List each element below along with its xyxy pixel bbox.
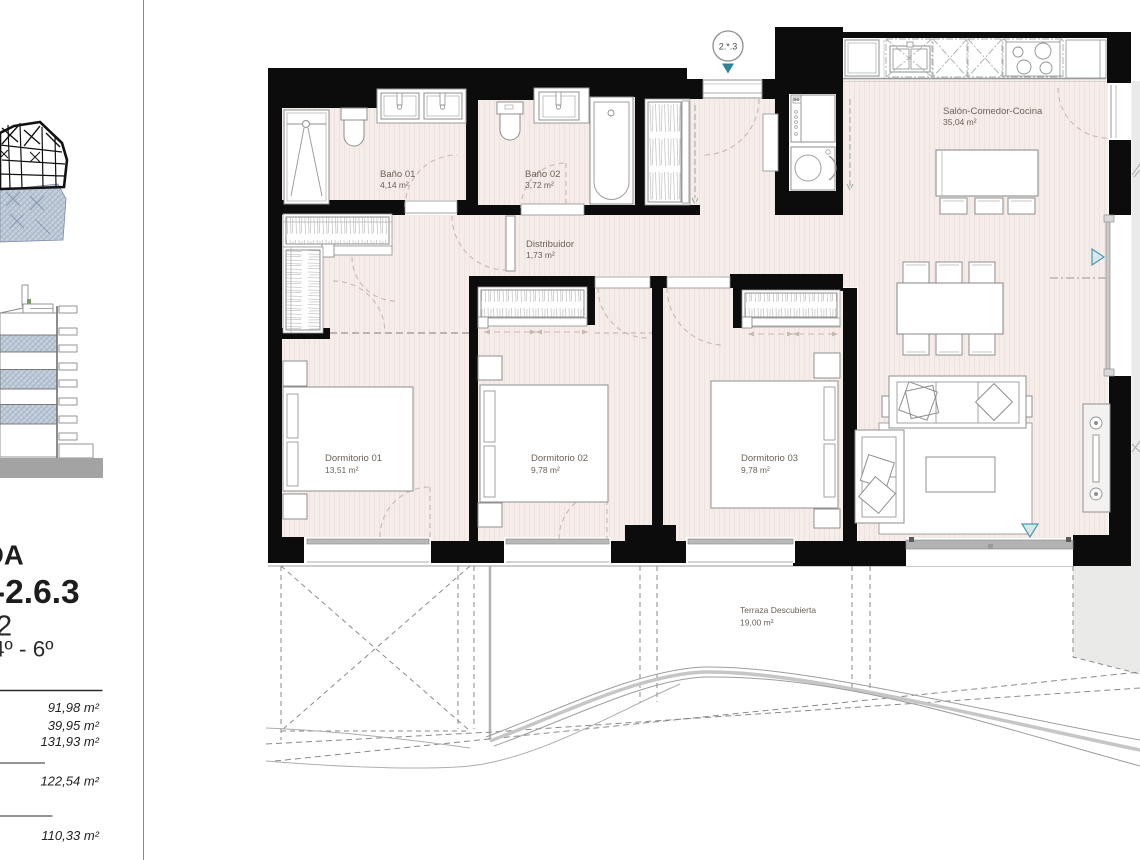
svg-text:131,93 m²: 131,93 m² <box>40 734 99 749</box>
svg-text:9,78 m²: 9,78 m² <box>531 465 560 475</box>
svg-text:Salón-Comedor-Cocina: Salón-Comedor-Cocina <box>943 106 1043 117</box>
svg-text:110,33 m²: 110,33 m² <box>41 828 99 843</box>
svg-text:39,95 m²: 39,95 m² <box>48 718 100 733</box>
svg-text:91,98 m²: 91,98 m² <box>48 700 100 715</box>
svg-text:Baño 02: Baño 02 <box>525 169 560 180</box>
svg-text:19,00 m²: 19,00 m² <box>740 618 774 628</box>
svg-text:Distribuidor: Distribuidor <box>526 239 574 250</box>
svg-text:Dormitorio 02: Dormitorio 02 <box>531 453 588 464</box>
svg-text:Terraza Descubierta: Terraza Descubierta <box>740 605 816 615</box>
svg-text:4º - 6º: 4º - 6º <box>0 637 53 662</box>
svg-text:Baño 01: Baño 01 <box>380 169 415 180</box>
svg-text:9,78 m²: 9,78 m² <box>741 465 770 475</box>
svg-text:1,73 m²: 1,73 m² <box>526 250 555 260</box>
svg-text:35,04 m²: 35,04 m² <box>943 117 977 127</box>
svg-text:3,72 m²: 3,72 m² <box>525 180 554 190</box>
svg-text:122,54 m²: 122,54 m² <box>40 774 99 789</box>
svg-text:DA: DA <box>0 540 24 571</box>
svg-text:Dormitorio 03: Dormitorio 03 <box>741 453 798 464</box>
svg-text:Dormitorio 01: Dormitorio 01 <box>325 453 382 464</box>
svg-text:2.*.3: 2.*.3 <box>719 42 738 52</box>
svg-text:4,14 m²: 4,14 m² <box>380 180 409 190</box>
svg-text:13,51 m²: 13,51 m² <box>325 465 359 475</box>
svg-text:-2.6.3: -2.6.3 <box>0 574 80 611</box>
